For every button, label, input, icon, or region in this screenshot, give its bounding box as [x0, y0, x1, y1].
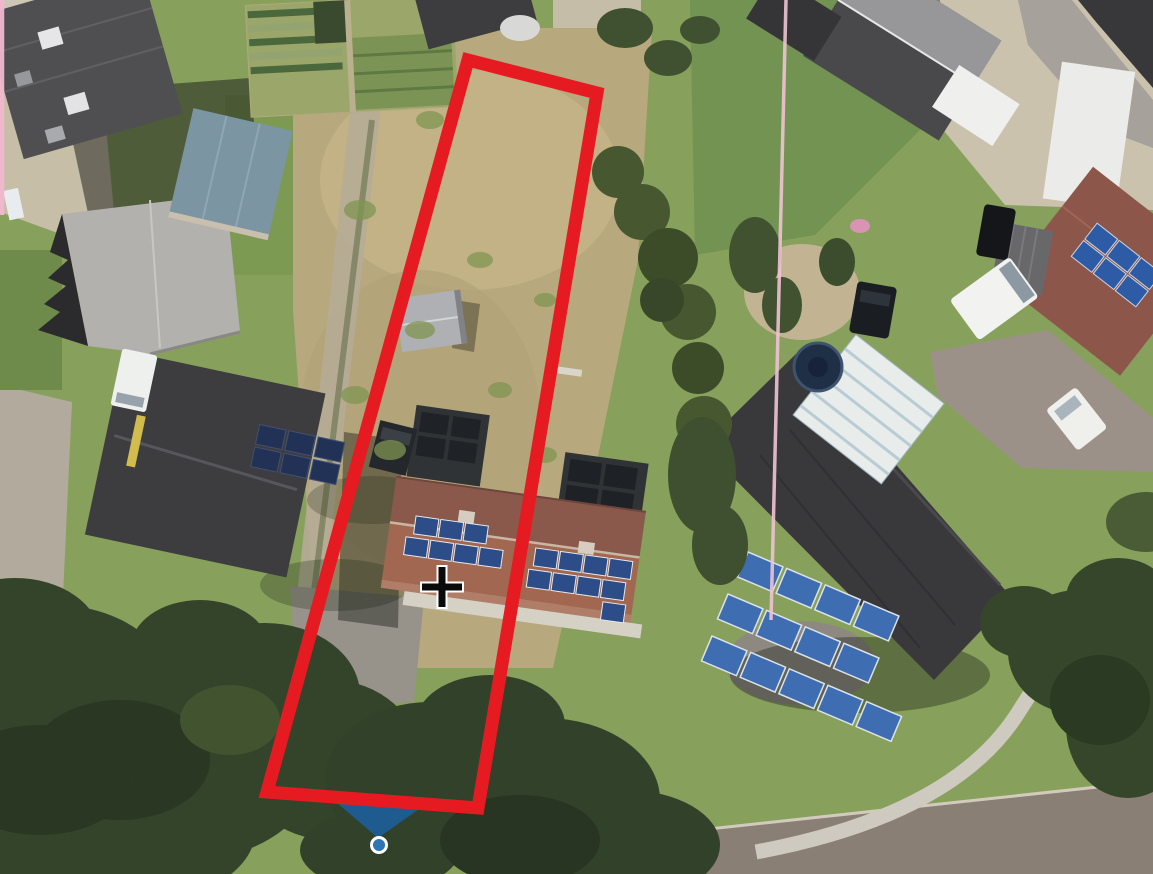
crosshair-black-v: [439, 567, 446, 607]
map-canvas[interactable]: [0, 0, 1153, 874]
vertex-marker[interactable]: [372, 838, 387, 853]
map-viewport[interactable]: [0, 0, 1153, 874]
satellite-imagery: [0, 0, 1153, 874]
